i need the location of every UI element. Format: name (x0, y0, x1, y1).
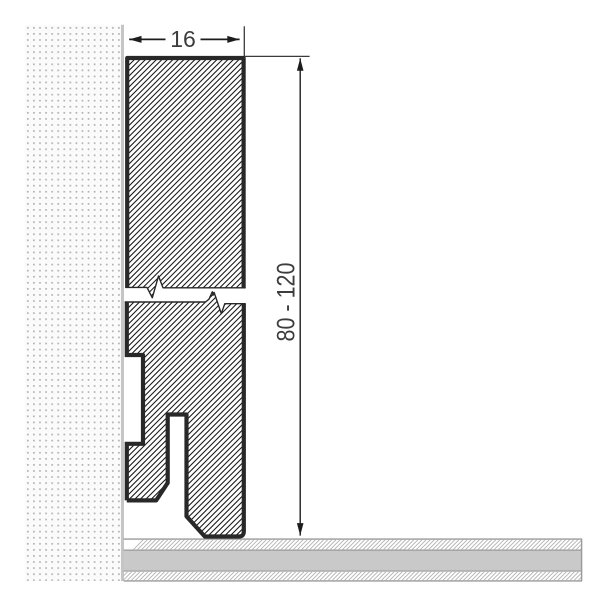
svg-text:16: 16 (170, 26, 196, 52)
svg-text:80 - 120: 80 - 120 (273, 263, 300, 342)
